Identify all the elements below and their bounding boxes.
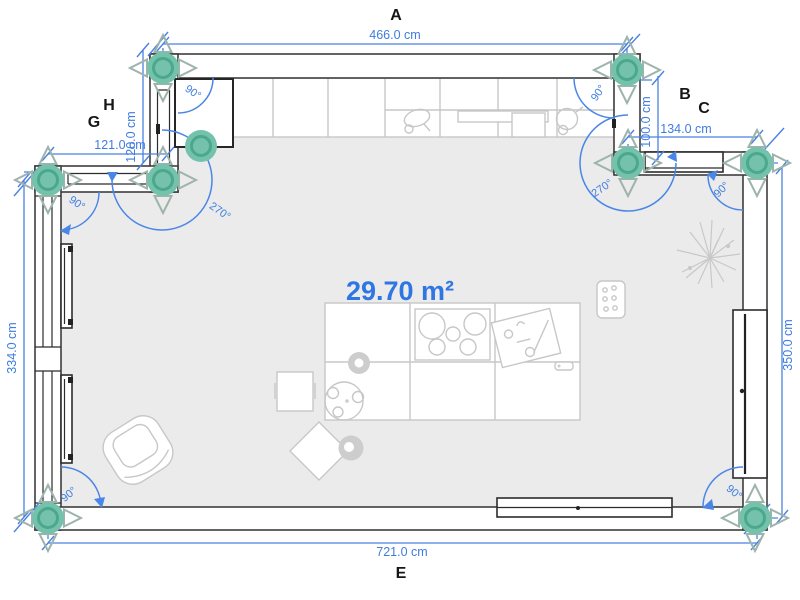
dimension-label-right[interactable]: 350.0 cm [781,319,795,370]
floor-plan-canvas[interactable]: 466.0 cm 121.0 cm 120.0 cm 100.0 cm 134.… [0,0,800,600]
kitchen-island[interactable] [325,303,580,420]
wall-left[interactable] [35,166,61,530]
room-area-label: 29.70 m² [346,276,454,306]
wall-c-window[interactable] [645,152,723,172]
door-stop-mark [612,119,616,128]
dimension-label-h[interactable]: 120.0 cm [124,111,138,162]
island-sink-drain[interactable] [348,352,370,374]
remote-item[interactable] [555,362,573,370]
right-wall-window[interactable] [733,310,767,478]
dimension-label-bottom[interactable]: 721.0 cm [376,545,427,559]
wall-letter-c: C [698,100,710,117]
kitchen-counter[interactable] [233,78,614,137]
wall-letter-h: H [103,97,115,114]
furniture-handle[interactable] [185,130,217,162]
dimension-label-c[interactable]: 134.0 cm [660,122,711,136]
radiator[interactable] [61,244,73,328]
dimension-label-b[interactable]: 100.0 cm [639,96,653,147]
door-stop-mark [156,124,160,134]
bottom-window[interactable] [497,498,672,517]
wall-letter-b: B [679,86,691,103]
table-seat[interactable] [339,436,364,461]
wall-letter-g: G [88,114,100,131]
wall-a[interactable] [150,54,640,78]
radiator[interactable] [61,375,73,463]
counter-basin[interactable] [512,113,545,137]
wall-letter-e: E [396,565,407,582]
control-panel[interactable] [597,281,625,318]
stool[interactable] [275,372,315,411]
dimension-label-left[interactable]: 334.0 cm [5,322,19,373]
dimension-label-top[interactable]: 466.0 cm [369,28,420,42]
wall-letter-a: A [390,7,402,24]
